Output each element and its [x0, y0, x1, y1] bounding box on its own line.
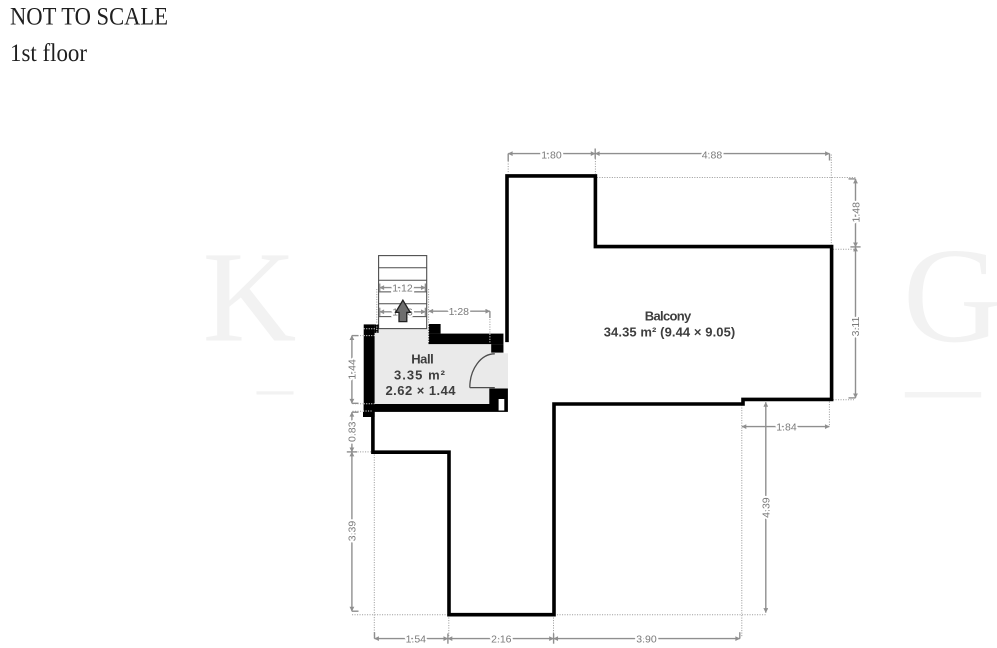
svg-text:NOT TO SCALE: NOT TO SCALE — [10, 4, 168, 31]
svg-text:3.90: 3.90 — [636, 634, 657, 646]
svg-text:2.16: 2.16 — [491, 634, 512, 646]
svg-text:1.48: 1.48 — [850, 202, 862, 223]
svg-text:1st floor: 1st floor — [10, 40, 88, 67]
svg-text:2.62 × 1.44: 2.62 × 1.44 — [386, 383, 457, 398]
svg-text:1.54: 1.54 — [406, 634, 427, 646]
svg-text:1.12: 1.12 — [392, 282, 413, 294]
svg-text:1.28: 1.28 — [449, 306, 470, 318]
svg-text:G: G — [903, 221, 997, 371]
svg-text:4.39: 4.39 — [761, 497, 773, 518]
svg-text:34.35 m² (9.44 × 9.05): 34.35 m² (9.44 × 9.05) — [604, 325, 736, 340]
svg-text:3.35 m²: 3.35 m² — [394, 367, 446, 382]
svg-text:Hall: Hall — [411, 351, 434, 366]
svg-text:1.44: 1.44 — [347, 359, 359, 380]
svg-text:Balcony: Balcony — [645, 309, 692, 324]
svg-text:4.88: 4.88 — [702, 149, 723, 161]
svg-text:0.83: 0.83 — [346, 421, 358, 442]
svg-text:3.39: 3.39 — [347, 521, 359, 542]
svg-text:1.80: 1.80 — [541, 149, 562, 161]
svg-text:3.11: 3.11 — [850, 317, 862, 337]
svg-text:1.84: 1.84 — [776, 422, 797, 434]
svg-text:K: K — [203, 226, 297, 370]
